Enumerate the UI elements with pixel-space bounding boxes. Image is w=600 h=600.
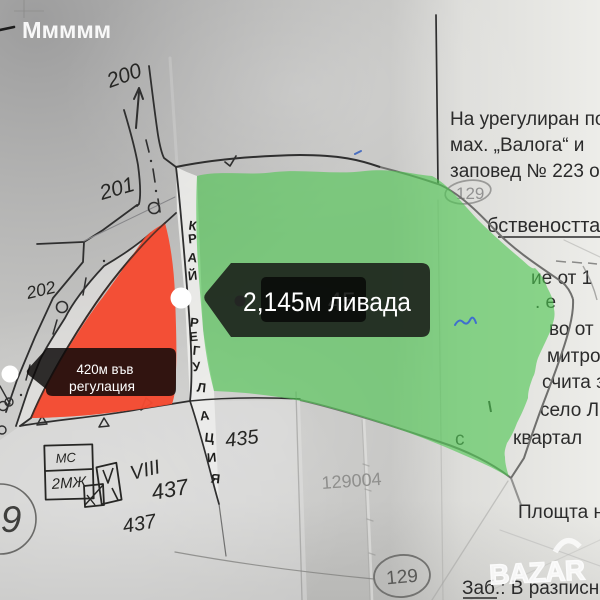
svg-text:2,145м ливада: 2,145м ливада (243, 287, 412, 317)
svg-text:2МЖ: 2МЖ (50, 474, 88, 494)
svg-text:129: 129 (385, 566, 418, 590)
svg-text:129: 129 (456, 184, 484, 203)
svg-text:село Л: село Л (540, 400, 599, 421)
svg-text:митро: митро (547, 346, 600, 367)
svg-text:9: 9 (1, 499, 22, 540)
svg-text:заповед № 223 о: заповед № 223 о (450, 161, 600, 182)
svg-text:129004: 129004 (321, 469, 382, 493)
svg-text:мах. „Валога“ и: мах. „Валога“ и (450, 135, 584, 156)
svg-text:И: И (206, 450, 217, 466)
svg-text:квартал: квартал (513, 428, 582, 449)
svg-text:бствеността: бствеността (487, 215, 600, 237)
svg-text:регулация: регулация (69, 378, 135, 394)
svg-text:Ммммм: Ммммм (22, 17, 111, 43)
svg-text:Я: Я (210, 471, 221, 487)
svg-text:МС: МС (55, 450, 77, 466)
svg-text:420м във: 420м във (77, 361, 134, 377)
svg-text:Площта н: Площта н (518, 502, 600, 523)
svg-text:На урегулиран по: На урегулиран по (450, 109, 600, 130)
svg-text:435: 435 (224, 426, 261, 452)
svg-text:Л: Л (196, 380, 207, 396)
svg-text:Й: Й (187, 268, 198, 284)
svg-text:BAZAR: BAZAR (488, 554, 585, 590)
